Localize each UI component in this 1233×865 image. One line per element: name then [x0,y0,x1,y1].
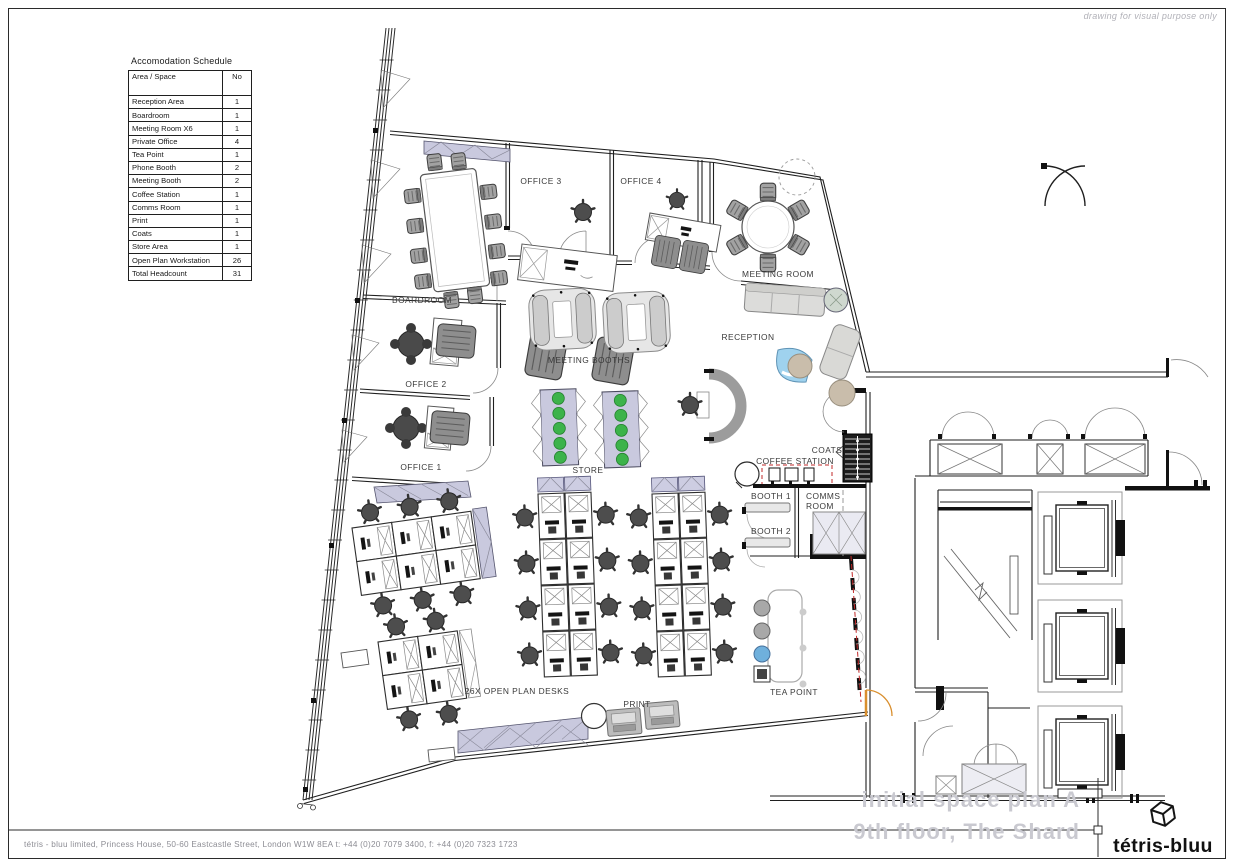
schedule-row: Print1 [129,214,252,227]
schedule-row: Store Area1 [129,241,252,254]
row-no: 1 [223,122,252,135]
schedule-row: Phone Booth2 [129,161,252,174]
row-area: Store Area [129,241,223,254]
schedule-row: Private Office4 [129,135,252,148]
row-area: Meeting Booth [129,175,223,188]
row-no: 1 [223,148,252,161]
sheet-title-line1: initial space plan A [660,784,1080,816]
row-no: 1 [223,109,252,122]
schedule-row: Reception Area1 [129,96,252,109]
row-no: 26 [223,254,252,267]
row-no: 4 [223,135,252,148]
schedule-col-no: No [223,71,252,96]
row-no: 1 [223,188,252,201]
row-no: 1 [223,227,252,240]
schedule-row: Coffee Station1 [129,188,252,201]
company-address: tétris - bluu limited, Princess House, 5… [24,840,518,849]
schedule-row: Comms Room1 [129,201,252,214]
row-area: Phone Booth [129,161,223,174]
schedule-row: Meeting Booth2 [129,175,252,188]
row-area: Open Plan Workstation [129,254,223,267]
schedule-col-area: Area / Space [129,71,223,96]
schedule-row: Open Plan Workstation26 [129,254,252,267]
row-no: 1 [223,96,252,109]
schedule-row: Total Headcount31 [129,267,252,280]
row-no: 31 [223,267,252,280]
schedule-table: Area / Space No Reception Area1 Boardroo… [128,70,252,281]
tetris-bluu-logo: tétris-bluu [1102,799,1224,858]
row-no: 1 [223,241,252,254]
row-area: Private Office [129,135,223,148]
schedule-row: Tea Point1 [129,148,252,161]
row-area: Coffee Station [129,188,223,201]
row-area: Total Headcount [129,267,223,280]
row-no: 2 [223,175,252,188]
row-area: Tea Point [129,148,223,161]
row-area: Comms Room [129,201,223,214]
schedule-row: Coats1 [129,227,252,240]
logo-wordmark: tétris-bluu [1102,835,1224,858]
row-area: Boardroom [129,109,223,122]
sheet-title-line2: 9th floor, The Shard [660,816,1080,848]
schedule-row: Boardroom1 [129,109,252,122]
row-area: Reception Area [129,96,223,109]
accommodation-schedule: Accomodation Schedule Area / Space No Re… [128,56,252,281]
cube-icon [1148,799,1178,829]
row-no: 2 [223,161,252,174]
disclaimer-note: drawing for visual purpose only [1084,11,1217,21]
row-no: 1 [223,201,252,214]
row-area: Print [129,214,223,227]
row-area: Coats [129,227,223,240]
sheet-title: initial space plan A 9th floor, The Shar… [660,784,1080,848]
row-area: Meeting Room X6 [129,122,223,135]
schedule-header-row: Area / Space No [129,71,252,96]
row-no: 1 [223,214,252,227]
schedule-row: Meeting Room X61 [129,122,252,135]
schedule-title: Accomodation Schedule [131,56,252,66]
drawing-sheet: BOARDROOM OFFICE 2 OFFICE 1 OFFICE 3 [0,0,1233,865]
